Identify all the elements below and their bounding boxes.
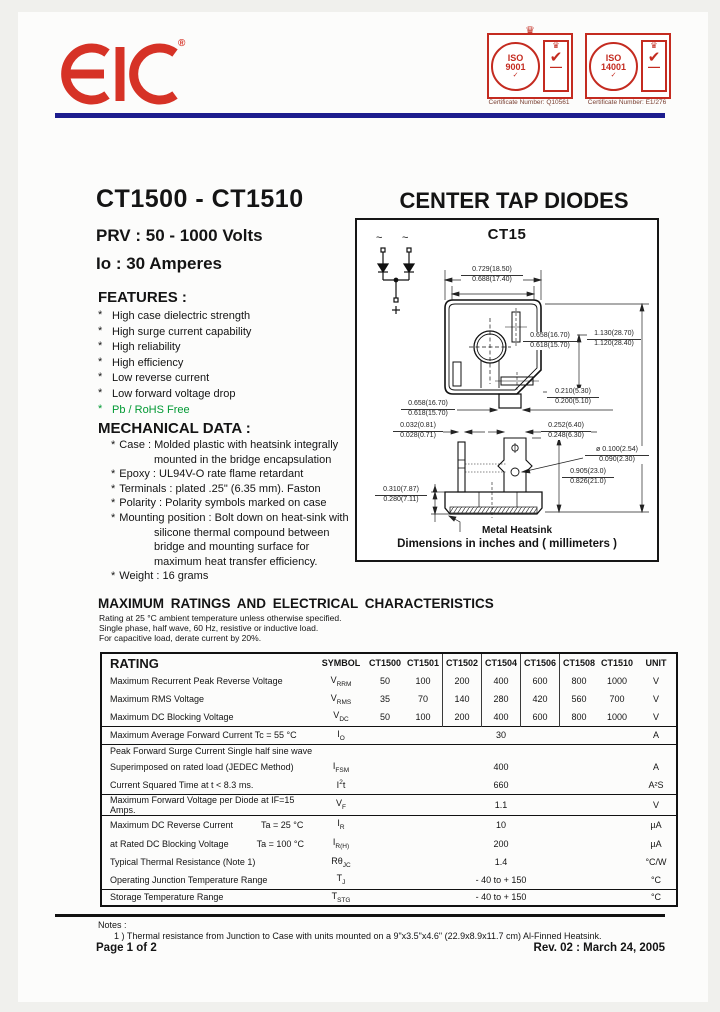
col-header-rating: RATING — [110, 656, 159, 671]
value-cell: 200 — [443, 708, 482, 726]
symbol-cell: IR(H) — [316, 834, 366, 853]
metal-heatsink-label: Metal Heatsink — [452, 525, 582, 536]
symbol-cell: IO — [316, 726, 366, 744]
value-cell: 30 — [366, 726, 636, 744]
table-row: Maximum Forward Voltage per Diode at IF=… — [101, 794, 677, 815]
feature-text: High case dielectric strength — [112, 310, 250, 322]
value-cell: 100 — [404, 672, 443, 690]
rating-label: Maximum Average Forward Current Tc = 55 … — [101, 726, 316, 744]
bullet: * — [98, 386, 102, 402]
symbol-cell: IFSM — [316, 758, 366, 776]
col-header-unit: UNIT — [636, 653, 677, 672]
value-cell: 400 — [482, 672, 521, 690]
table-row: Maximum DC Blocking Voltage VDC 50 100 2… — [101, 708, 677, 726]
value-cell: 660 — [366, 776, 636, 794]
col-header-part: CT1502 — [443, 653, 482, 672]
rating-label: Maximum Forward Voltage per Diode at IF=… — [101, 794, 316, 815]
value-cell: 100 — [404, 708, 443, 726]
mech-item: *Terminals : plated .25" (6.35 mm). Fast… — [98, 482, 360, 497]
feature-item: *High case dielectric strength — [98, 309, 348, 325]
footer-divider — [55, 914, 665, 917]
unit-cell: V — [636, 672, 677, 690]
rating-label: Operating Junction Temperature Range — [101, 871, 316, 889]
table-row: at Rated DC Blocking VoltageTa = 100 °C … — [101, 834, 677, 853]
value-cell: 50 — [366, 708, 404, 726]
table-row: Maximum RMS Voltage VRMS 35 70 140 280 4… — [101, 690, 677, 708]
dim-mm: 0.028(0.71) — [393, 432, 443, 441]
dim-inch: 0.658(16.70) — [401, 400, 455, 410]
value-cell: 1000 — [598, 672, 636, 690]
table-row: Storage Temperature Range TSTG - 40 to +… — [101, 889, 677, 906]
symbol-cell: VRMS — [316, 690, 366, 708]
iso9001-seal: ISO 9001 ✓ — [491, 42, 540, 91]
rating-label: Superimposed on rated load (JEDEC Method… — [101, 758, 316, 776]
col-header-symbol: SYMBOL — [316, 653, 366, 672]
table-header-row: RATING SYMBOL CT1500 CT1501 CT1502 CT150… — [101, 653, 677, 672]
ukas-check-mark: ♛ ✔ ▬▬▬ — [641, 40, 667, 92]
unit-cell: V — [636, 708, 677, 726]
bullet: * — [98, 308, 102, 324]
notes-heading: Notes : — [98, 920, 127, 930]
mech-item: *Case : Molded plastic with heatsink int… — [98, 438, 360, 467]
bullet: * — [98, 355, 102, 371]
unit-cell: A — [636, 726, 677, 744]
dim-mm: 1.120(28.40) — [587, 340, 641, 349]
bullet: * — [111, 497, 115, 509]
mech-item: *Epoxy : UL94V-O rate flame retardant — [98, 467, 360, 482]
mech-text: Weight : 16 grams — [119, 570, 208, 582]
dim-inch: 0.905(23.0) — [562, 468, 614, 478]
check-icon: ✔ — [648, 50, 661, 65]
feature-item: *High efficiency — [98, 356, 348, 372]
tick-mark: ✓ — [611, 72, 617, 79]
dim-mm: 0.200(5.10) — [547, 398, 599, 407]
certificate-number: Certificate Number: Q10561 — [474, 99, 584, 106]
dim-inch: 0.729(18.50) — [461, 266, 523, 276]
symbol-cell: VF — [316, 794, 366, 815]
dim-label: 0.729(18.50) 0.688(17.40) — [461, 266, 523, 284]
feature-text: High surge current capability — [112, 326, 251, 338]
ratings-table: RATING SYMBOL CT1500 CT1501 CT1502 CT150… — [100, 652, 678, 907]
dim-label: 0.032(0.81) 0.028(0.71) — [393, 422, 443, 440]
table-row: Maximum Recurrent Peak Reverse Voltage V… — [101, 672, 677, 690]
feature-item: *High surge current capability — [98, 325, 348, 341]
diode-symbol — [404, 264, 414, 272]
bullet: * — [111, 468, 115, 480]
value-cell: 70 — [404, 690, 443, 708]
col-header-part: CT1510 — [598, 653, 636, 672]
value-cell: - 40 to + 150 — [366, 871, 636, 889]
terminal-slot — [453, 362, 461, 386]
feature-item: *Low reverse current — [98, 371, 348, 387]
dim-label: ø 0.100(2.54) 0.090(2.30) — [585, 446, 649, 464]
registered-trademark: ® — [178, 38, 185, 49]
mech-text: Polarity : Polarity symbols marked on ca… — [119, 497, 326, 509]
note-1: 1 ) Thermal resistance from Junction to … — [114, 931, 602, 941]
value-cell: 600 — [521, 672, 560, 690]
table-row: Typical Thermal Resistance (Note 1) RθJC… — [101, 853, 677, 871]
dim-mm: 0.688(17.40) — [461, 276, 523, 285]
header-divider — [55, 113, 665, 118]
mech-item: *Polarity : Polarity symbols marked on c… — [98, 496, 360, 511]
symbol-cell: RθJC — [316, 853, 366, 871]
unit-cell: °C — [636, 871, 677, 889]
unit-cell: A²S — [636, 776, 677, 794]
unit-cell: °C — [636, 889, 677, 906]
value-cell: 400 — [482, 708, 521, 726]
dimensions-caption: Dimensions in inches and ( millimeters ) — [357, 538, 657, 550]
product-category-title: CENTER TAP DIODES — [364, 188, 664, 214]
terminal-hole — [511, 468, 519, 476]
revision-date: Rev. 02 : March 24, 2005 — [534, 942, 665, 954]
package-side-view — [445, 438, 542, 518]
iso9001-badge: ♛ ISO 9001 ✓ ♛ ✔ ▬▬▬ — [487, 33, 573, 99]
col-header-part: CT1500 — [366, 653, 404, 672]
value-cell: 280 — [482, 690, 521, 708]
iso-number: 9001 — [505, 63, 525, 72]
mech-text: Terminals : plated .25" (6.35 mm). Fasto… — [119, 483, 320, 495]
value-cell: 50 — [366, 672, 404, 690]
feature-item: *Low forward voltage drop — [98, 387, 348, 403]
heatsink-hatch — [450, 507, 537, 513]
dim-mm: 0.280(7.11) — [375, 496, 427, 505]
rating-label: Maximum DC Blocking Voltage — [101, 708, 316, 726]
value-cell: 560 — [560, 690, 599, 708]
value-cell: 140 — [443, 690, 482, 708]
value-cell: 1000 — [598, 708, 636, 726]
dim-inch: 0.658(16.70) — [523, 332, 577, 342]
symbol-cell: VDC — [316, 708, 366, 726]
col-header-part: CT1506 — [521, 653, 560, 672]
rating-label: Peak Forward Surge Current Single half s… — [101, 744, 316, 758]
value-cell: 400 — [366, 758, 636, 776]
value-cell: 200 — [366, 834, 636, 853]
ratings-heading: MAXIMUM RATINGS AND ELECTRICAL CHARACTER… — [98, 596, 494, 611]
test-condition: Ta = 100 °C — [257, 839, 304, 849]
unit-cell: A — [636, 758, 677, 776]
faston-terminal-thin — [458, 442, 465, 492]
center-tap-schematic: ~ ~ — [376, 232, 414, 314]
diode-symbol — [378, 264, 388, 272]
mech-text: Case : Molded plastic with heatsink inte… — [119, 439, 338, 466]
table-row: Peak Forward Surge Current Single half s… — [101, 744, 677, 758]
tick-mark: ✓ — [513, 72, 519, 79]
value-cell: 800 — [560, 708, 599, 726]
bullet: * — [111, 439, 115, 451]
ratings-condition: For capacitive load, derate current by 2… — [99, 633, 261, 643]
mech-item: *Weight : 16 grams — [98, 569, 360, 584]
symbol-cell: I2t — [316, 776, 366, 794]
dim-inch: 1.130(28.70) — [587, 330, 641, 340]
mech-text: Epoxy : UL94V-O rate flame retardant — [119, 468, 303, 480]
features-heading: FEATURES : — [98, 289, 187, 306]
bullet: * — [98, 402, 102, 418]
check-icon: ✔ — [550, 50, 563, 65]
value-cell: 1.1 — [366, 794, 636, 815]
col-header-part: CT1508 — [560, 653, 599, 672]
eic-logo — [58, 36, 183, 110]
value-cell: 200 — [443, 672, 482, 690]
dim-mm: 0.826(21.0) — [562, 478, 614, 487]
iso14001-badge: ISO 14001 ✓ ♛ ✔ ▬▬▬ — [585, 33, 671, 99]
bottom-tab — [499, 394, 521, 408]
col-header-part: CT1504 — [482, 653, 521, 672]
ukas-check-mark: ♛ ✔ ▬▬▬ — [543, 40, 569, 92]
dim-label: 1.130(28.70) 1.120(28.40) — [587, 330, 641, 348]
value-cell: - 40 to + 150 — [366, 889, 636, 906]
rating-label: Maximum DC Reverse CurrentTa = 25 °C — [101, 815, 316, 834]
table-row: Maximum Average Forward Current Tc = 55 … — [101, 726, 677, 744]
certificate-number: Certificate Number: E1/276 — [572, 99, 682, 106]
value-cell: 600 — [521, 708, 560, 726]
col-header-part: CT1501 — [404, 653, 443, 672]
dim-mm: 0.090(2.30) — [585, 456, 649, 465]
test-condition: Ta = 25 °C — [261, 820, 303, 830]
dim-mm: 0.618(15.70) — [401, 410, 455, 419]
value-cell: 1.4 — [366, 853, 636, 871]
value-cell: 700 — [598, 690, 636, 708]
table-row: Operating Junction Temperature Range TJ … — [101, 871, 677, 889]
symbol-cell: IR — [316, 815, 366, 834]
rating-label: Typical Thermal Resistance (Note 1) — [101, 853, 316, 871]
unit-cell: °C/W — [636, 853, 677, 871]
dim-inch: ø 0.100(2.54) — [585, 446, 649, 456]
dim-mm: 0.248(6.30) — [541, 432, 591, 441]
bullet: * — [98, 324, 102, 340]
dim-inch: 0.310(7.87) — [375, 486, 427, 496]
dim-mm: 0.618(15.70) — [523, 342, 577, 351]
symbol-cell: TSTG — [316, 889, 366, 906]
mechanical-data-heading: MECHANICAL DATA : — [98, 420, 251, 437]
unit-cell: µA — [636, 815, 677, 834]
dim-label: 0.310(7.87) 0.280(7.11) — [375, 486, 427, 504]
io-rating: Io : 30 Amperes — [96, 254, 222, 274]
iso14001-seal: ISO 14001 ✓ — [589, 42, 638, 91]
value-cell: 10 — [366, 815, 636, 834]
feature-text: Low reverse current — [112, 372, 209, 384]
feature-text: High reliability — [112, 341, 180, 353]
part-number-title: CT1500 - CT1510 — [96, 185, 304, 214]
page-number: Page 1 of 2 — [96, 942, 157, 954]
datasheet-page: ® ♛ ISO 9001 ✓ ♛ ✔ ▬▬▬ Certificate Numbe… — [0, 0, 720, 1012]
dim-label: 0.658(16.70) 0.618(15.70) — [401, 400, 455, 418]
mechanical-data-list: *Case : Molded plastic with heatsink int… — [98, 438, 360, 584]
dim-label: 0.252(6.40) 0.248(6.30) — [541, 422, 591, 440]
rating-label: Storage Temperature Range — [101, 889, 316, 906]
dim-label: 0.905(23.0) 0.826(21.0) — [562, 468, 614, 486]
prv-rating: PRV : 50 - 1000 Volts — [96, 226, 263, 246]
unit-cell: V — [636, 690, 677, 708]
feature-text: Low forward voltage drop — [112, 388, 236, 400]
feature-text: Pb / RoHS Free — [112, 404, 190, 416]
bullet: * — [111, 483, 115, 495]
dim-label: 0.210(5.30) 0.200(5.10) — [547, 388, 599, 406]
rating-label: at Rated DC Blocking VoltageTa = 100 °C — [101, 834, 316, 853]
package-drawing-box: ~ ~ — [355, 218, 659, 562]
rating-label: Current Squared Time at t < 8.3 ms. — [101, 776, 316, 794]
rating-label: Maximum Recurrent Peak Reverse Voltage — [101, 672, 316, 690]
bullet: * — [111, 512, 115, 524]
crown-icon: ♛ — [525, 24, 535, 37]
dim-label: 0.658(16.70) 0.618(15.70) — [523, 332, 577, 350]
mech-text: Mounting position : Bolt down on heat-si… — [119, 512, 348, 568]
unit-cell: µA — [636, 834, 677, 853]
feature-item-pb-free: *Pb / RoHS Free — [98, 403, 348, 419]
mech-item: *Mounting position : Bolt down on heat-s… — [98, 511, 360, 569]
features-list: *High case dielectric strength *High sur… — [98, 309, 348, 418]
dim-inch: 0.252(6.40) — [541, 422, 591, 432]
dim-inch: 0.032(0.81) — [393, 422, 443, 432]
bullet: * — [98, 339, 102, 355]
ratings-condition: Rating at 25 °C ambient temperature unle… — [99, 613, 341, 623]
value-cell: 800 — [560, 672, 599, 690]
feature-item: *High reliability — [98, 340, 348, 356]
symbol-cell: VRRM — [316, 672, 366, 690]
table-row: Maximum DC Reverse CurrentTa = 25 °C IR … — [101, 815, 677, 834]
table-row: Superimposed on rated load (JEDEC Method… — [101, 758, 677, 776]
package-top-view — [445, 300, 541, 408]
feature-text: High efficiency — [112, 357, 183, 369]
dim-inch: 0.210(5.30) — [547, 388, 599, 398]
value-cell: 35 — [366, 690, 404, 708]
iso-number: 14001 — [601, 63, 626, 72]
ratings-condition: Single phase, half wave, 60 Hz, resistiv… — [99, 623, 318, 633]
bullet: * — [98, 370, 102, 386]
symbol-cell: TJ — [316, 871, 366, 889]
value-cell: 420 — [521, 690, 560, 708]
rating-label: Maximum RMS Voltage — [101, 690, 316, 708]
bullet: * — [111, 570, 115, 582]
unit-cell: V — [636, 794, 677, 815]
table-row: Current Squared Time at t < 8.3 ms. I2t … — [101, 776, 677, 794]
package-name: CT15 — [357, 226, 657, 243]
